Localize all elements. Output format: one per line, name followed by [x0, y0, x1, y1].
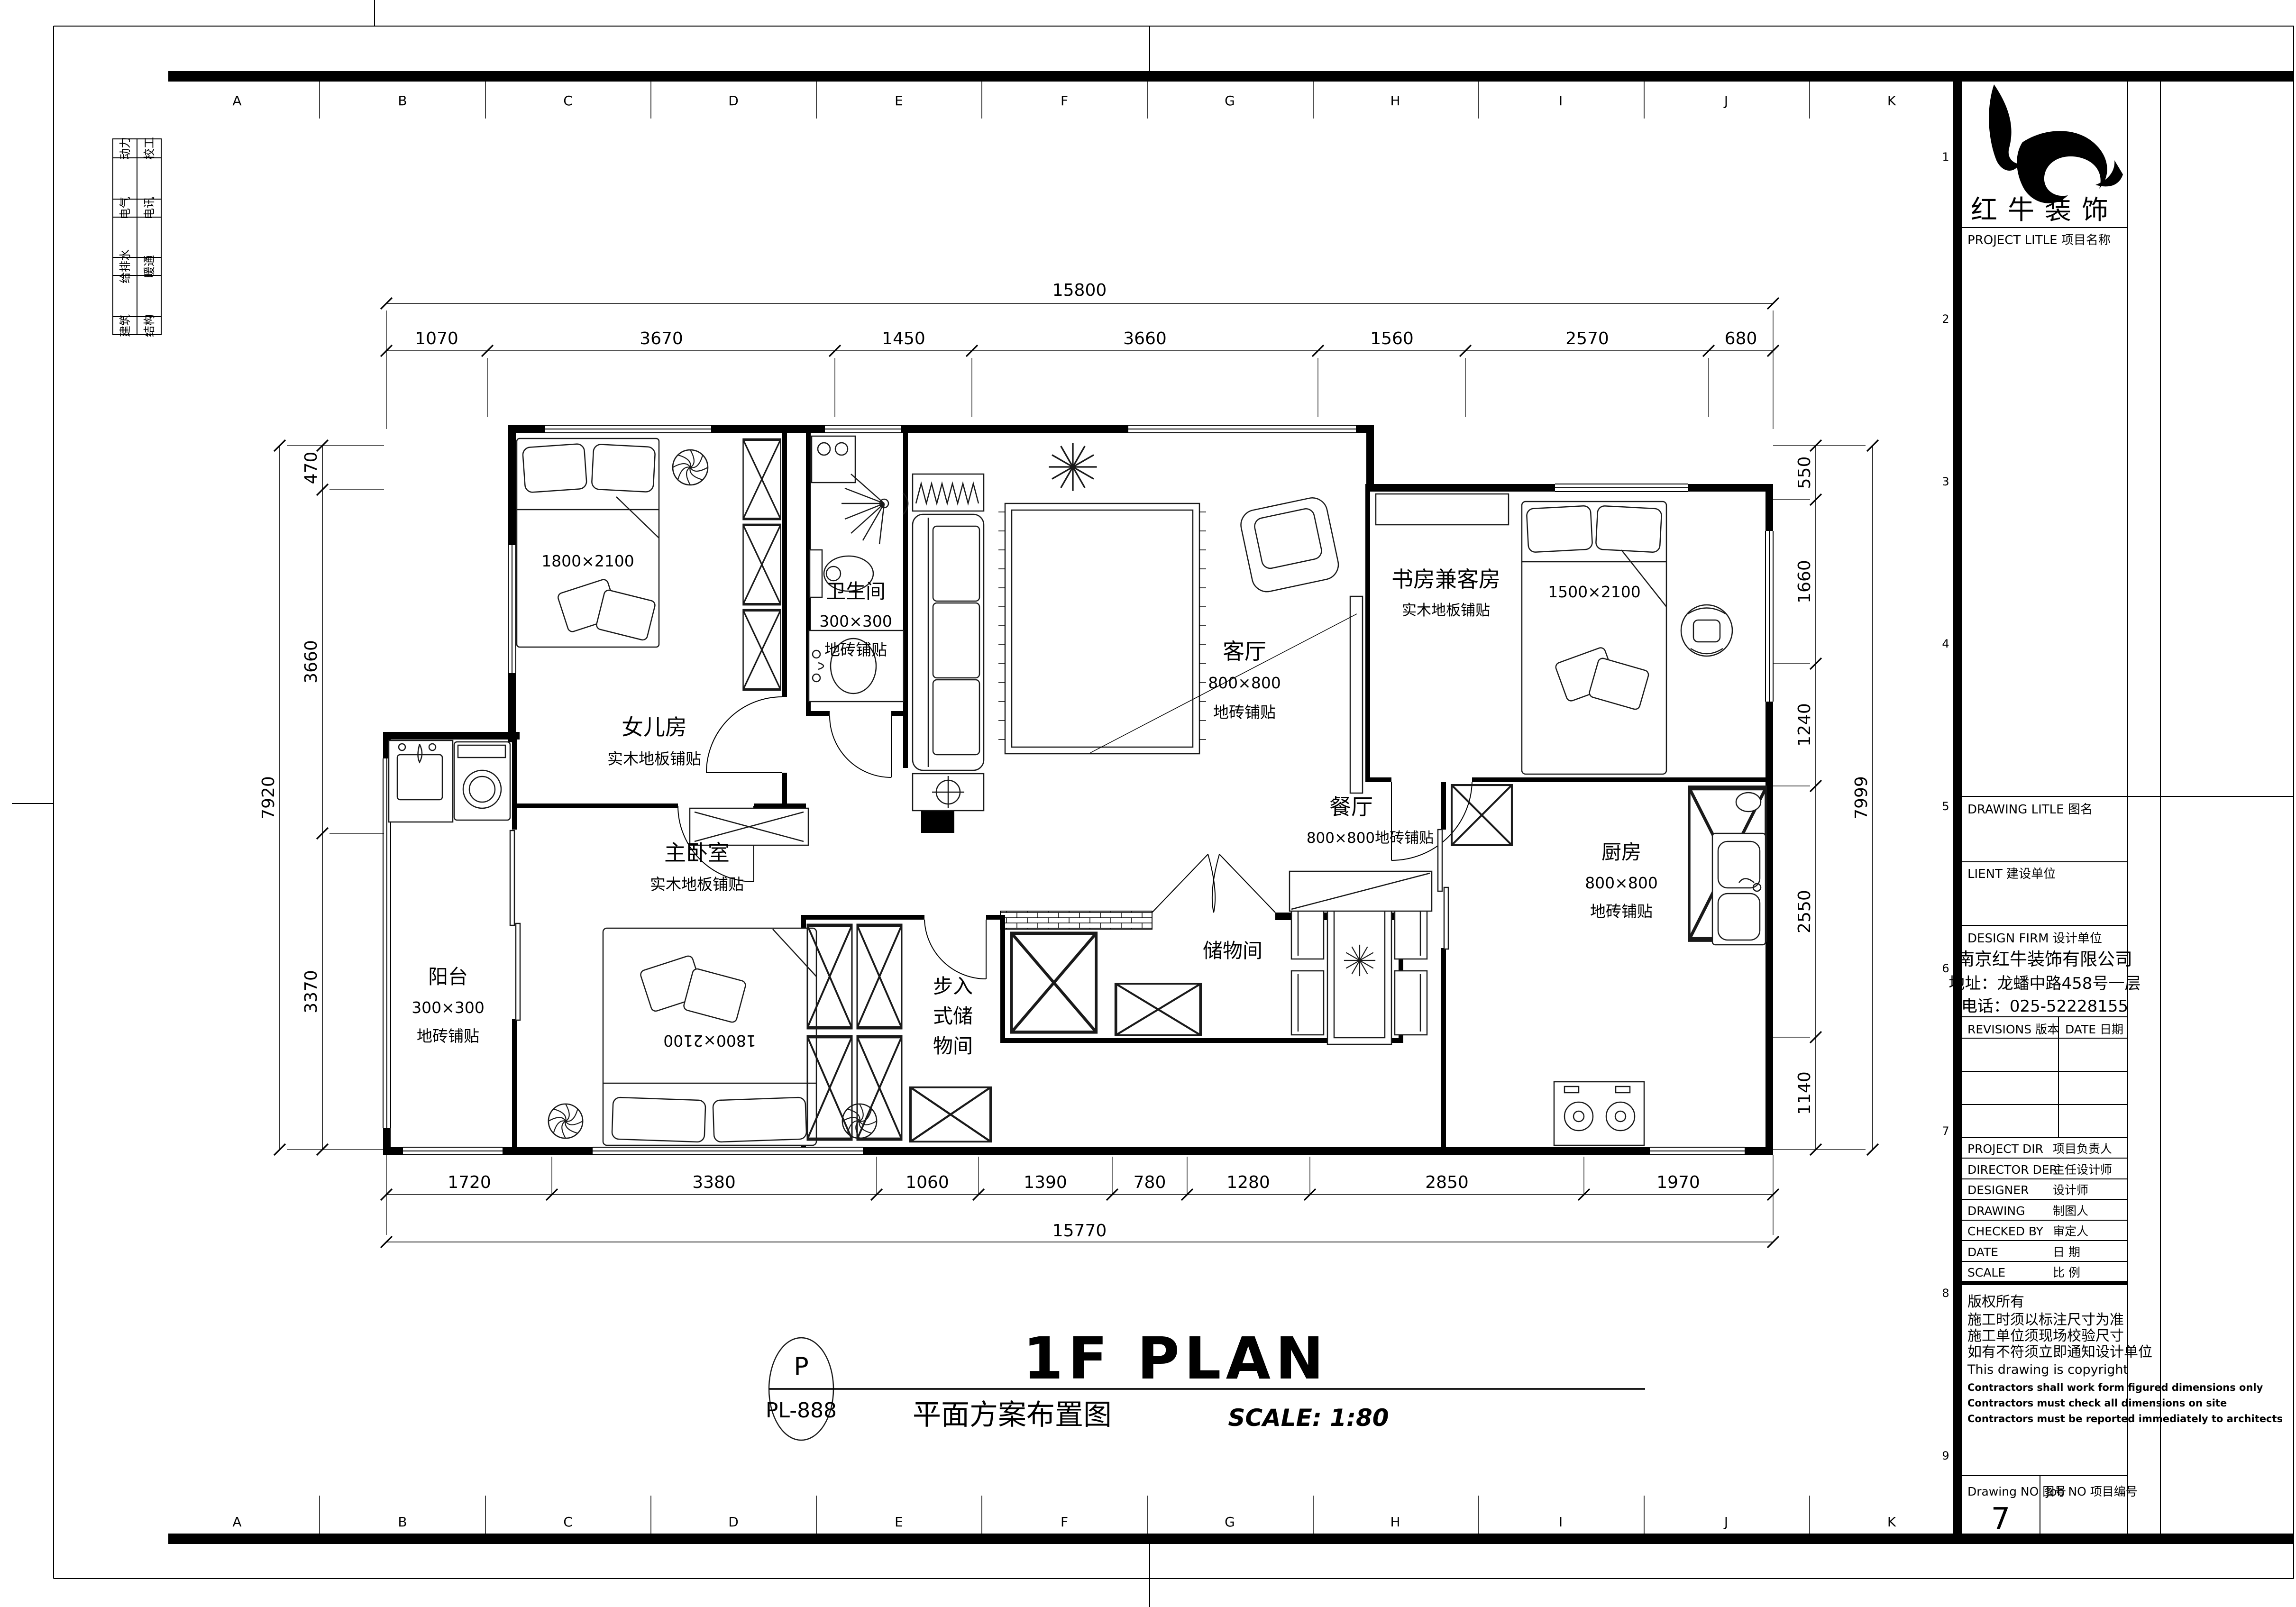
plant-icon — [1049, 443, 1097, 491]
frame-band-top — [168, 71, 2294, 82]
tb-project-title: PROJECT LITLE 项目名称 — [1967, 233, 2111, 247]
grid-letter: K — [1887, 93, 1896, 109]
discipline-cell: 校工 — [143, 137, 156, 160]
fold-number: 4 — [1942, 637, 1949, 650]
grid-letter: I — [1559, 1514, 1563, 1530]
discipline-table: 动力 校工 电气 电讯 给排水 暖通 建筑 结构 — [113, 137, 161, 337]
grid-letter: H — [1390, 93, 1400, 109]
door-walkin — [924, 920, 986, 979]
drawing-sheet: A B C D E F G H I J K A B C D E F G H I … — [0, 0, 2296, 1607]
tb-job-no-label: Job NO 项目编号 — [2045, 1485, 2138, 1498]
discipline-cell: 结构 — [143, 314, 156, 337]
tb-row-cn: 制图人 — [2053, 1204, 2088, 1218]
room-label-storage: 储物间 — [1203, 939, 1262, 962]
door-kitchen-sliding — [1438, 830, 1448, 949]
bubble-code: PL-888 — [766, 1398, 837, 1423]
tb-row-cn: 日 期 — [2053, 1245, 2080, 1259]
grid-letter: A — [232, 1514, 241, 1530]
tb-row-cn: 设计师 — [2053, 1183, 2088, 1197]
room-name: 卫生间 — [826, 580, 886, 603]
discipline-cell: 动力 — [119, 137, 132, 160]
grid-letter: B — [398, 1514, 407, 1530]
room-name: 女儿房 — [622, 714, 687, 740]
fold-number: 6 — [1942, 962, 1949, 975]
grid-letter: C — [563, 93, 573, 109]
room-name: 式储 — [933, 1004, 973, 1028]
lamp-table — [913, 774, 984, 811]
tb-row-en: SCALE — [1967, 1266, 2005, 1279]
tb-note: 施工时须以标注尺寸为准 — [1967, 1312, 2124, 1328]
room-label-bath: 卫生间 300×300 地砖铺贴 — [819, 580, 892, 659]
grid-letter: G — [1225, 93, 1235, 109]
grid-letter: J — [1723, 93, 1728, 109]
room-tile2: 地砖铺贴 — [1590, 902, 1653, 921]
grid-letter: F — [1061, 1514, 1068, 1530]
dim-right-total: 7999 — [1852, 776, 1871, 820]
grid-letter: C — [563, 1514, 573, 1530]
bed-daughter: 1800×2100 — [517, 438, 659, 647]
fold-number: 3 — [1942, 475, 1949, 488]
room-tile2: 地砖铺贴 — [417, 1027, 479, 1045]
dim: 470 — [302, 452, 321, 484]
dim-left-total: 7920 — [259, 776, 278, 820]
tb-row-en: DRAWING — [1967, 1204, 2025, 1218]
room-label-walkin: 步入 式储 物间 — [933, 975, 973, 1058]
room-floor: 实木地板铺贴 — [607, 749, 701, 768]
tb-client: LIENT 建设单位 — [1967, 867, 2056, 881]
fold-number: 8 — [1942, 1287, 1949, 1300]
dim: 1280 — [1226, 1173, 1270, 1192]
stove — [1554, 1082, 1644, 1145]
door-daughter — [706, 697, 782, 773]
balcony-sink — [389, 740, 453, 822]
fold-number: 1 — [1942, 150, 1949, 164]
bed-size-label: 1800×2100 — [541, 552, 634, 570]
walkin-wardrobes — [807, 925, 991, 1141]
wardrobe-daughter — [743, 439, 781, 689]
title-en: 1F PLAN — [1023, 1325, 1328, 1392]
floorplan-svg: A B C D E F G H I J K A B C D E F G H I … — [0, 0, 2296, 1607]
dim: 1060 — [906, 1173, 949, 1192]
rednow-logo — [1989, 84, 2123, 203]
desk-study — [1376, 494, 1509, 525]
fold-number: 7 — [1942, 1124, 1949, 1138]
bubble-letter: P — [794, 1352, 808, 1381]
tb-row-en: DATE — [1967, 1245, 1998, 1259]
tb-note: 施工单位须现场校验尺寸 — [1967, 1328, 2124, 1344]
firm-name: 南京红牛装饰有限公司 — [1957, 949, 2132, 969]
balcony-washer — [454, 742, 510, 820]
tb-note: Contractors must check all dimensions on… — [1967, 1397, 2227, 1409]
grid-letter: E — [895, 1514, 903, 1530]
tb-row-cn: 主任设计师 — [2053, 1163, 2112, 1177]
room-label-master: 主卧室 实木地板铺贴 — [650, 840, 744, 894]
dim: 680 — [1725, 329, 1757, 348]
tb-row-en: CHECKED BY — [1967, 1224, 2044, 1238]
rug — [998, 503, 1206, 754]
dim: 3380 — [692, 1173, 736, 1192]
grid-letter: B — [398, 93, 407, 109]
dim: 2550 — [1795, 890, 1814, 933]
tb-row-cn: 审定人 — [2053, 1224, 2088, 1238]
door-entry-double — [1152, 854, 1275, 913]
room-tile: 800×800 — [1208, 674, 1281, 692]
tb-note: Contractors must be reported immediately… — [1967, 1413, 2283, 1424]
ceiling-fan-icon — [673, 450, 708, 485]
bed-size-label: 1500×2100 — [1548, 583, 1641, 601]
storage-wardrobes — [1012, 933, 1201, 1035]
fold-number: 9 — [1942, 1449, 1949, 1462]
kitchen-sink — [1712, 833, 1765, 945]
firm-tel: 电话：025-52228155 — [1961, 997, 2128, 1016]
dim-top-total: 15800 — [1052, 281, 1107, 300]
room-name: 书房兼客房 — [1391, 566, 1500, 592]
dim: 3670 — [640, 329, 683, 348]
tb-row-en: PROJECT DIR — [1967, 1142, 2043, 1156]
grid-letter: I — [1559, 93, 1563, 109]
room-name: 厨房 — [1601, 840, 1641, 864]
room-label-study: 书房兼客房 实木地板铺贴 — [1391, 566, 1500, 619]
dim: 3370 — [302, 970, 321, 1014]
washing-machine-bath — [812, 436, 855, 483]
tb-design-firm: DESIGN FIRM 设计单位 — [1967, 931, 2102, 946]
grid-letter: A — [232, 93, 241, 109]
tb-revisions: REVISIONS 版本 — [1967, 1023, 2059, 1036]
dim: 3660 — [302, 640, 321, 684]
room-tile: 300×300 — [412, 998, 485, 1017]
fold-numbers: 1 2 3 4 5 6 7 8 9 — [1942, 150, 1949, 1462]
room-label-balcony: 阳台 300×300 地砖铺贴 — [412, 965, 485, 1045]
door-balcony-sliding — [510, 831, 520, 1020]
grid-letter: K — [1887, 1514, 1896, 1530]
room-label-kitchen: 厨房 800×800 地砖铺贴 — [1585, 840, 1658, 921]
grid-letter: D — [728, 93, 739, 109]
bed-master: 1800×2100 — [603, 928, 816, 1145]
tb-date-col: DATE 日期 — [2065, 1023, 2123, 1036]
dim: 1970 — [1656, 1173, 1700, 1192]
armchair — [1238, 495, 1341, 594]
room-floor: 实木地板铺贴 — [650, 875, 744, 894]
shoe-cabinet — [1290, 871, 1432, 911]
brick-wall — [1000, 911, 1152, 929]
grid-letter: G — [1225, 1514, 1235, 1530]
tb-note: 如有不符须立即通知设计单位 — [1967, 1344, 2152, 1360]
room-name: 物间 — [933, 1034, 973, 1058]
tb-row-en: DESIGNER — [1967, 1183, 2029, 1197]
grid-letter: D — [728, 1514, 739, 1530]
room-name: 步入 — [933, 975, 973, 998]
discipline-cell: 建筑 — [119, 314, 132, 337]
tb-row-en: DIRECTOR DER — [1967, 1163, 2058, 1177]
tb-note: Contractors shall work form figured dime… — [1967, 1382, 2263, 1393]
discipline-cell: 暖通 — [143, 255, 156, 278]
room-tile2: 地砖铺贴 — [1213, 703, 1276, 721]
shower-icon — [842, 474, 908, 544]
dim: 550 — [1795, 457, 1814, 489]
bed-size-label: 1800×2100 — [663, 1032, 756, 1050]
room-floor: 实木地板铺贴 — [1402, 602, 1490, 619]
corner-basin — [1736, 793, 1761, 812]
room-tile2: 地砖铺贴 — [824, 640, 887, 659]
dim: 780 — [1134, 1173, 1166, 1192]
sheet-title: P PL-888 1F PLAN 平面方案布置图 SCALE: 1:80 — [766, 1325, 1645, 1440]
tb-drawing-no: 7 — [1991, 1502, 2011, 1537]
dim: 1560 — [1370, 329, 1414, 348]
dim: 2850 — [1425, 1173, 1469, 1192]
room-tile: 800×800 — [1585, 874, 1658, 892]
fold-number: 2 — [1942, 312, 1949, 326]
room-tile: 300×300 — [819, 612, 892, 630]
titleblock: 红牛装饰 PROJECT LITLE 项目名称 DRAWING LITLE 图名… — [1949, 71, 2294, 1544]
tv-panel — [1090, 596, 1363, 793]
dim: 1720 — [448, 1173, 491, 1192]
ceiling-fan-icon — [549, 1104, 583, 1138]
dim: 2570 — [1565, 329, 1609, 348]
fold-number: 5 — [1942, 800, 1949, 813]
dim: 1140 — [1795, 1071, 1814, 1115]
fridge-icon — [1452, 785, 1512, 845]
dim-bottom-total: 15770 — [1052, 1221, 1107, 1241]
discipline-cell: 电讯 — [143, 197, 156, 219]
discipline-cell: 电气 — [119, 197, 132, 219]
bed-study: 1500×2100 — [1522, 502, 1666, 774]
dim: 3660 — [1123, 329, 1167, 348]
room-name: 餐厅 — [1329, 794, 1373, 820]
grid-letter: F — [1061, 93, 1068, 109]
dim: 1450 — [882, 329, 925, 348]
reading-chair — [1681, 605, 1732, 656]
tb-note: 版权所有 — [1967, 1294, 2024, 1310]
room-name: 主卧室 — [664, 840, 730, 866]
firm-addr: 地址：龙蟠中路458号一层 — [1949, 974, 2141, 993]
dim: 1240 — [1795, 703, 1814, 747]
frame-band-bottom — [168, 1534, 2294, 1544]
room-label-daughter: 女儿房 实木地板铺贴 — [607, 714, 701, 768]
door-bath — [830, 716, 891, 777]
title-scale: SCALE: 1:80 — [1228, 1404, 1389, 1432]
room-name: 客厅 — [1223, 639, 1266, 664]
tb-row-cn: 项目负责人 — [2053, 1142, 2112, 1156]
grid-letter: J — [1723, 1514, 1728, 1530]
title-cn: 平面方案布置图 — [913, 1398, 1112, 1432]
discipline-cell: 给排水 — [119, 249, 132, 283]
tb-row-cn: 比 例 — [2053, 1266, 2080, 1279]
dim: 1070 — [415, 329, 458, 348]
sofa — [913, 514, 984, 770]
grid-letter: H — [1390, 1514, 1400, 1530]
tb-drawing-title: DRAWING LITLE 图名 — [1967, 803, 2093, 817]
dim: 1660 — [1795, 560, 1814, 603]
room-label-dining: 餐厅 800×800地砖铺贴 — [1307, 794, 1434, 847]
dim: 1390 — [1024, 1173, 1067, 1192]
sofa-console-plant — [913, 474, 984, 511]
brand-name: 红牛装饰 — [1971, 195, 2119, 226]
room-label-living: 客厅 800×800 地砖铺贴 — [1208, 639, 1281, 721]
room-tile: 800×800地砖铺贴 — [1307, 830, 1434, 847]
grid-letter: E — [895, 93, 903, 109]
room-name: 阳台 — [428, 965, 468, 988]
tb-note: This drawing is copyright — [1967, 1362, 2128, 1377]
